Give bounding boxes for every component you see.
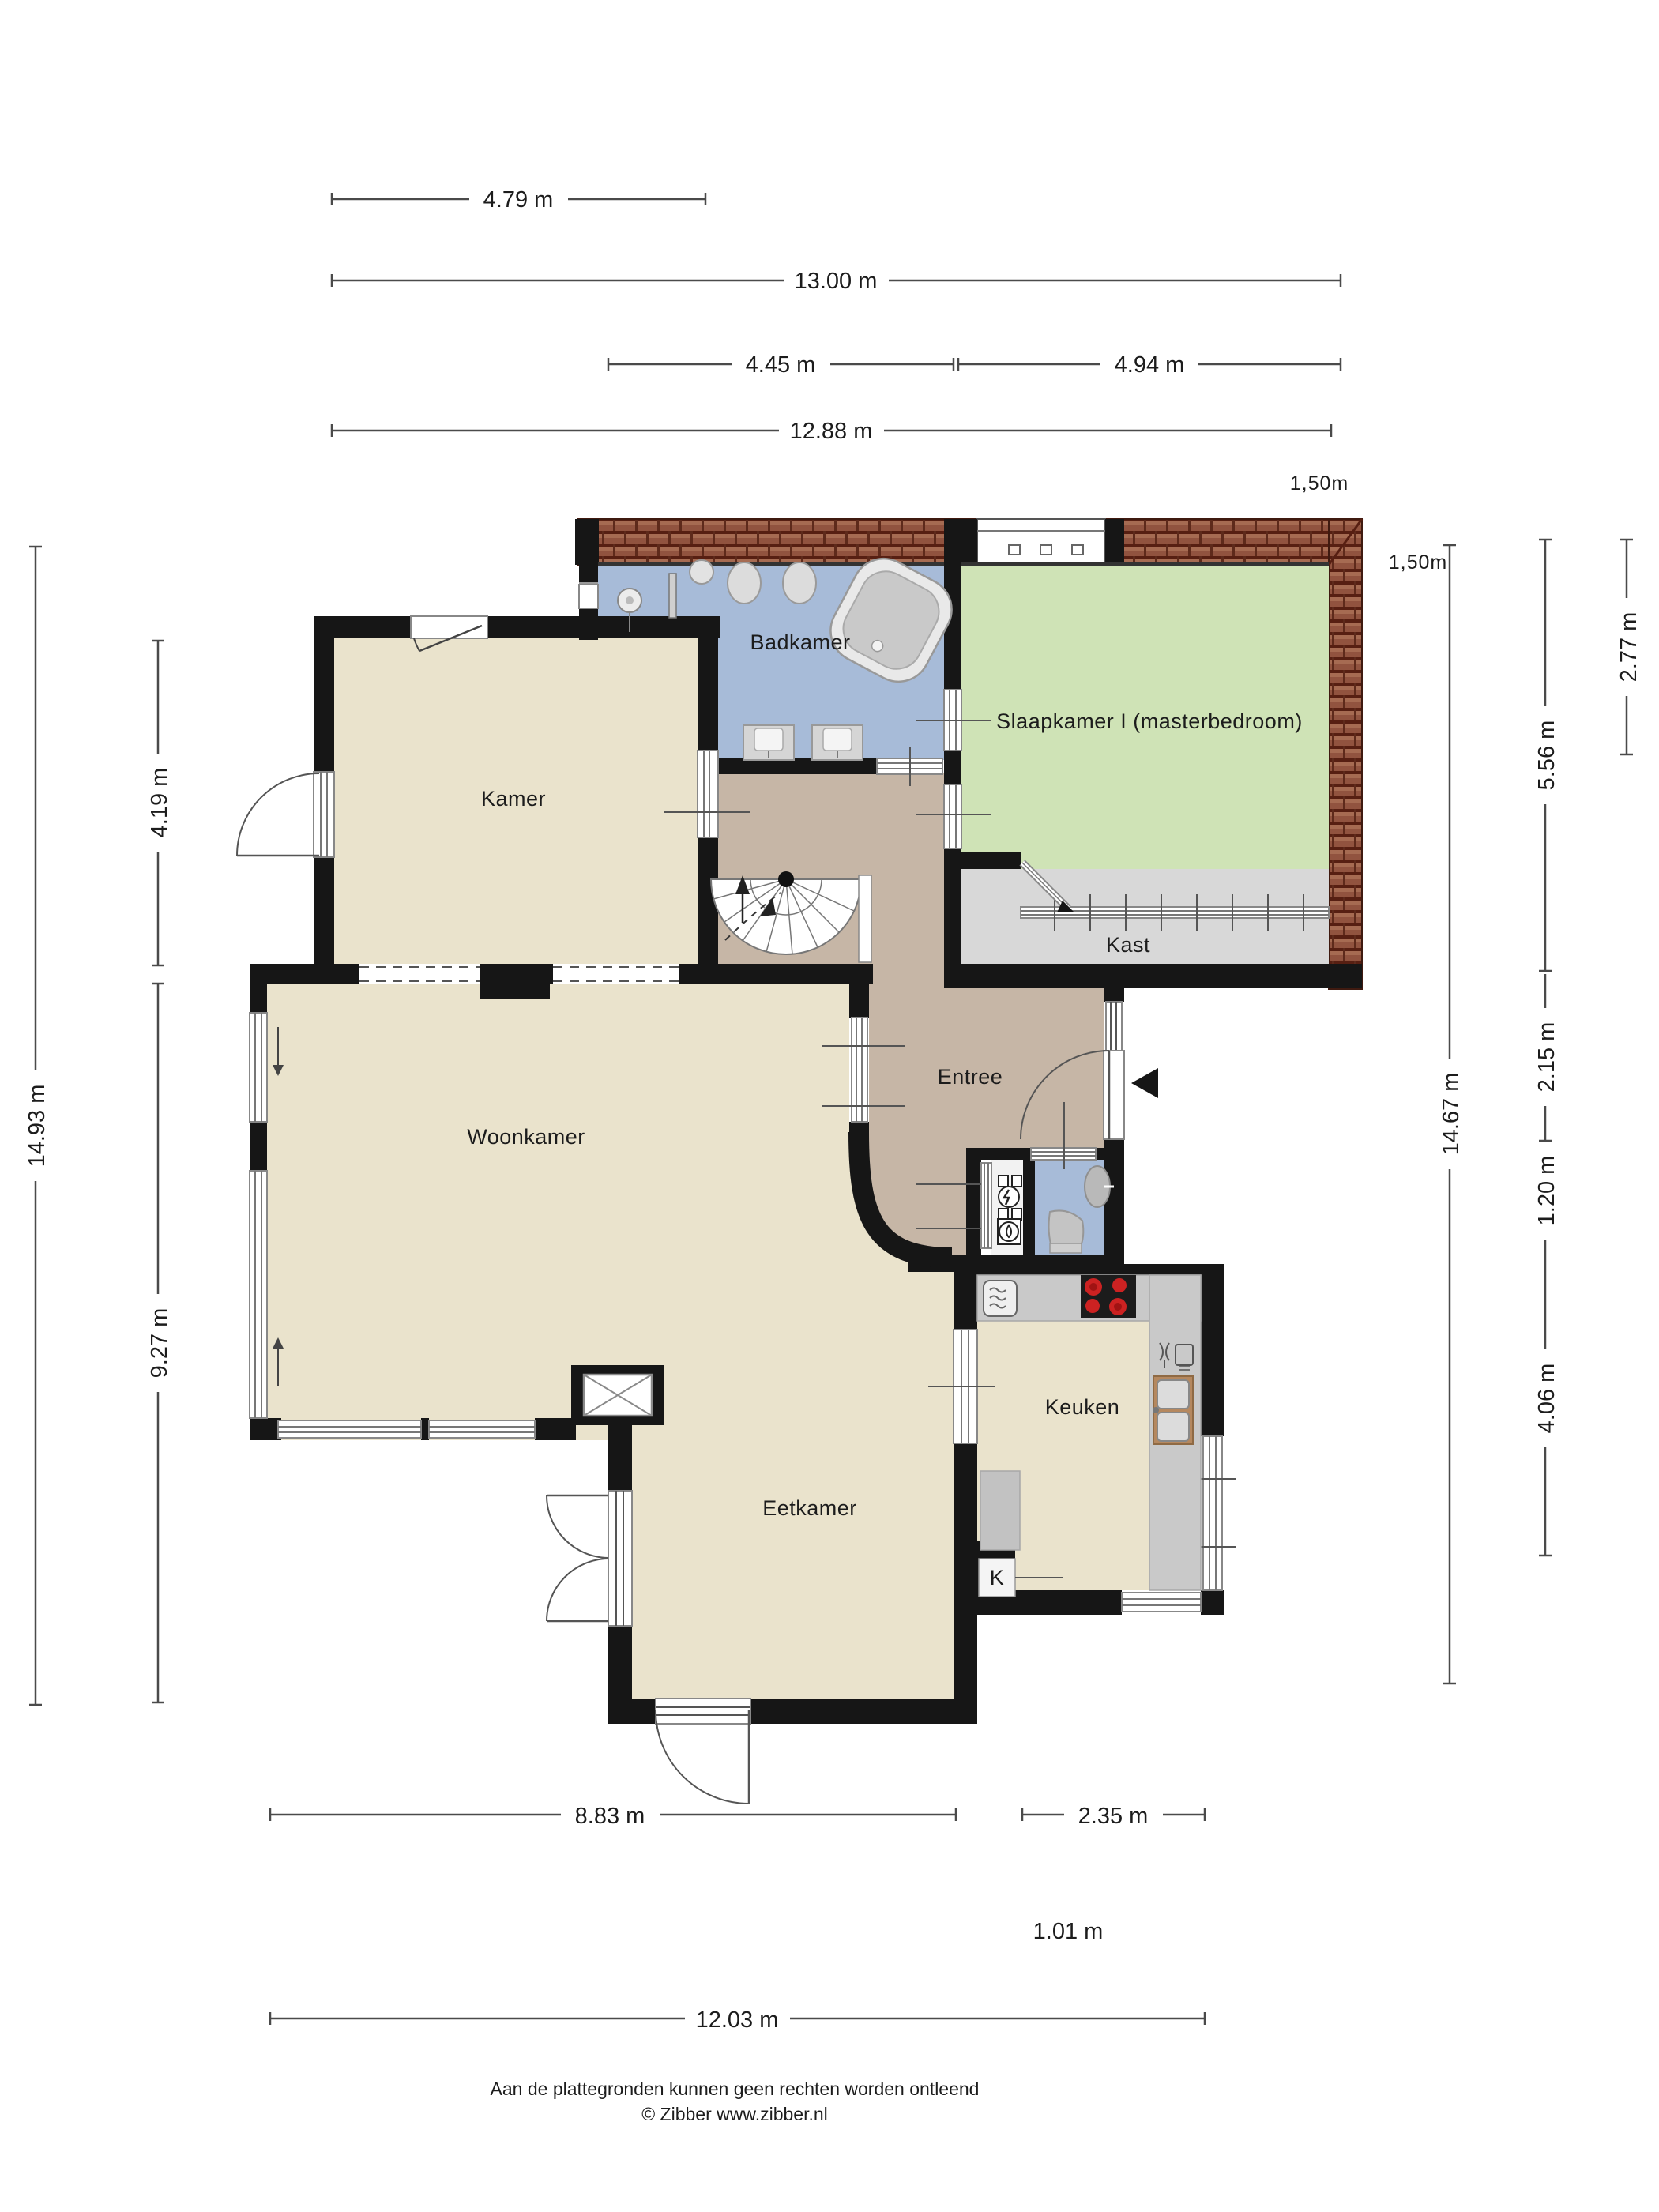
label-badkamer: Badkamer <box>750 630 850 654</box>
kamer-exterior-door <box>237 773 319 856</box>
dim-left-419: 4.19 m <box>147 768 172 838</box>
woonkamer-bottom-windows <box>278 1420 535 1438</box>
toilet-bowl-icon <box>728 562 761 604</box>
dim-top-445: 4.45 m <box>746 352 816 378</box>
roof-overhang-label-top: 1,50m <box>1290 472 1349 495</box>
microwave-icon <box>984 1281 1017 1316</box>
label-kast: Kast <box>1106 933 1150 957</box>
label-entree: Entree <box>938 1065 1003 1089</box>
dim-right-1467: 14.67 m <box>1439 1073 1464 1156</box>
fireplace-icon <box>584 1375 652 1416</box>
radiator-icon <box>669 574 676 618</box>
floorplan-page: Badkamer Slaapkamer I (masterbedroom) Ka… <box>0 0 1659 2212</box>
room-woonkamer-floor <box>267 984 849 1440</box>
dim-bottom-101: 1.01 m <box>1033 1919 1104 1944</box>
dim-bottom-235: 2.35 m <box>1078 1804 1149 1829</box>
roof-overhang-label-right: 1,50m <box>1389 551 1447 574</box>
dim-left-927: 9.27 m <box>147 1308 172 1379</box>
label-woonkamer: Woonkamer <box>467 1125 585 1149</box>
dim-top-1300: 13.00 m <box>795 269 878 294</box>
shower-drain-icon <box>626 596 634 604</box>
label-k-closet: K <box>990 1566 1005 1589</box>
dim-top-479: 4.79 m <box>483 187 554 213</box>
footer-copyright: © Zibber www.zibber.nl <box>641 2104 828 2124</box>
roof-left-corner-wall <box>575 519 599 565</box>
dim-right-120: 1.20 m <box>1534 1156 1559 1226</box>
dim-top-494: 4.94 m <box>1115 352 1185 378</box>
dim-bottom-1203: 12.03 m <box>696 2007 779 2033</box>
dim-bottom-883: 8.83 m <box>575 1804 645 1829</box>
dim-right-556: 5.56 m <box>1534 720 1559 791</box>
label-keuken: Keuken <box>1045 1395 1120 1419</box>
kitchen-cabinet <box>980 1471 1020 1550</box>
eetkamer-door <box>656 1698 750 1804</box>
dim-left-1493: 14.93 m <box>24 1085 50 1168</box>
vanity-sink-right <box>812 725 863 760</box>
floorplan-canvas: Badkamer Slaapkamer I (masterbedroom) Ka… <box>0 0 1659 2212</box>
footer: Aan de plattegronden kunnen geen rechten… <box>491 2078 980 2124</box>
french-doors <box>547 1491 632 1626</box>
dim-top-1288: 12.88 m <box>790 419 873 444</box>
bidet-icon <box>783 562 816 604</box>
label-kamer: Kamer <box>481 787 546 811</box>
kitchen-sink-icon <box>1153 1376 1193 1444</box>
label-slaapkamer: Slaapkamer I (masterbedroom) <box>996 709 1303 733</box>
entrance-arrow-icon <box>1131 1068 1158 1098</box>
washbasin-icon <box>690 560 713 584</box>
footer-disclaimer: Aan de plattegronden kunnen geen rechten… <box>491 2078 980 2099</box>
label-eetkamer: Eetkamer <box>762 1496 857 1520</box>
dim-right-215: 2.15 m <box>1534 1022 1559 1093</box>
dormer-window <box>960 519 1124 565</box>
roof-right-band <box>1329 519 1362 989</box>
vanity-sink-left <box>743 725 794 760</box>
dim-right-277: 2.77 m <box>1616 612 1642 683</box>
dim-right-406: 4.06 m <box>1534 1364 1559 1434</box>
room-eetkamer-floor <box>632 1440 954 1698</box>
cooktop-icon <box>1081 1275 1136 1318</box>
